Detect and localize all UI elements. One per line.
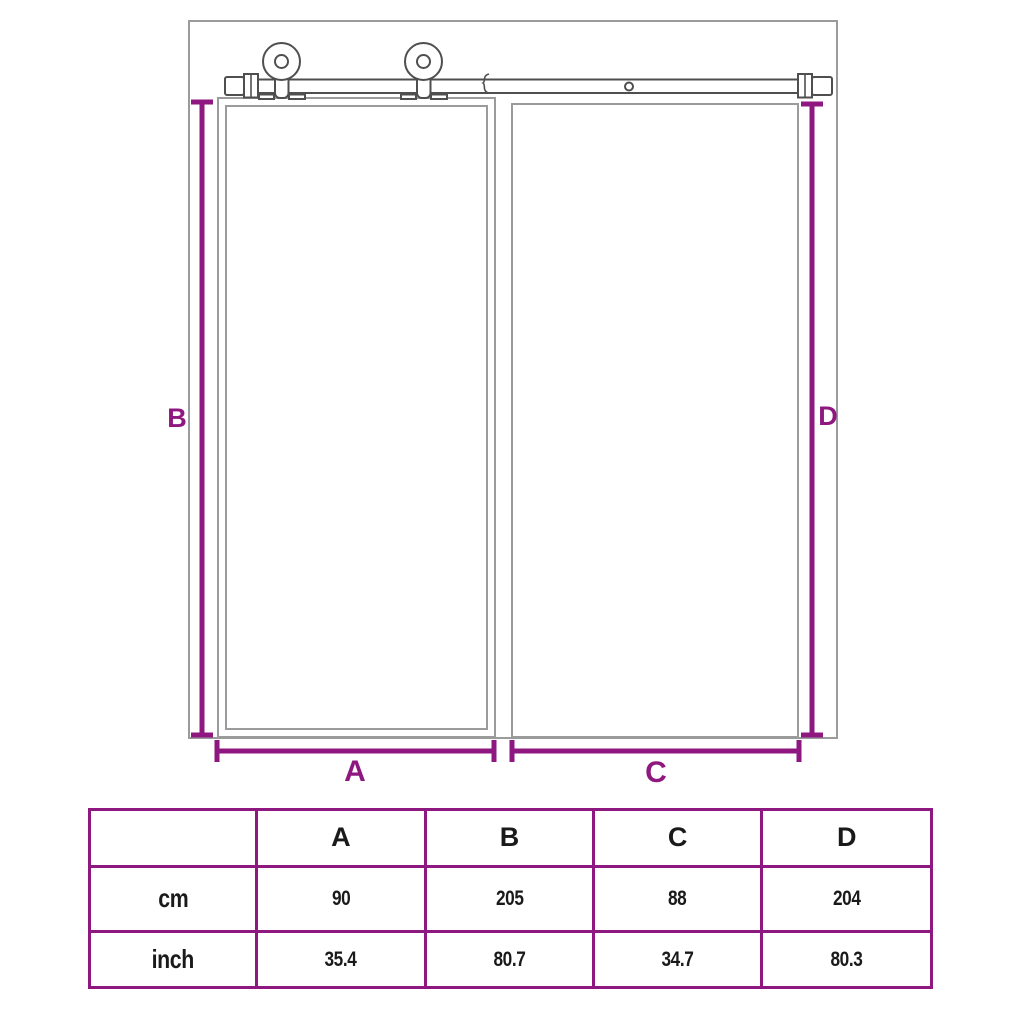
dimension-d: D [801, 104, 838, 735]
roller-right-plate-a [401, 95, 416, 100]
dimension-a: A [217, 740, 494, 788]
value-inch-c-text: 34.7 [662, 948, 694, 972]
doorway-opening [512, 104, 798, 737]
value-inch-a: 35.4 [258, 933, 425, 986]
table-header-b-text: B [500, 822, 520, 853]
sliding-rail [225, 74, 832, 98]
value-cm-c: 88 [595, 868, 761, 931]
table-header-d: D [763, 811, 930, 865]
door-outer-edge [218, 98, 495, 737]
roller-left-axle [275, 55, 288, 68]
table-header-b: B [427, 811, 592, 865]
value-inch-b: 80.7 [427, 933, 592, 986]
value-cm-a: 90 [258, 868, 425, 931]
rail-end-cap-right [812, 77, 832, 95]
row-label-inch-text: inch [152, 944, 194, 975]
roller-left-plate-b [289, 95, 305, 100]
door-inner-edge [226, 106, 487, 729]
rail-tube [258, 80, 798, 94]
value-cm-b-text: 205 [496, 887, 524, 911]
table-corner-cell [91, 811, 255, 865]
table-header-c: C [595, 811, 761, 865]
door-panel [218, 98, 495, 737]
value-cm-d-text: 204 [833, 887, 861, 911]
value-cm-c-text: 88 [668, 887, 686, 911]
roller-right-axle [417, 55, 430, 68]
roller-left-plate-a [259, 95, 274, 100]
row-label-cm-text: cm [158, 883, 188, 914]
dimension-a-label: A [344, 755, 366, 788]
sliding-door-diagram: B D A C [0, 0, 1024, 800]
dimension-c-label: C [645, 756, 667, 789]
rail-mount-hole [625, 83, 633, 91]
dimension-c: C [512, 740, 799, 789]
rail-end-cap-left [225, 77, 244, 95]
table-header-a: A [258, 811, 425, 865]
table-header-d-text: D [837, 822, 857, 853]
value-cm-a-text: 90 [332, 887, 350, 911]
value-inch-b-text: 80.7 [494, 948, 526, 972]
value-inch-a-text: 35.4 [325, 948, 357, 972]
dimensions-table: A B C D cm 90 205 88 204 inch [88, 808, 933, 989]
value-inch-d-text: 80.3 [831, 948, 863, 972]
value-inch-d: 80.3 [763, 933, 930, 986]
value-inch-c: 34.7 [595, 933, 761, 986]
table-header-c-text: C [668, 822, 688, 853]
value-cm-b: 205 [427, 868, 592, 931]
product-dimensions-page: B D A C A [0, 0, 1024, 1024]
value-cm-d: 204 [763, 868, 930, 931]
row-label-cm: cm [91, 868, 255, 931]
roller-right-plate-b [431, 95, 447, 100]
row-label-inch: inch [91, 933, 255, 986]
dimension-b-label: B [167, 403, 187, 433]
table-header-a-text: A [331, 822, 351, 853]
dimension-d-label: D [818, 401, 838, 431]
dimension-b: B [167, 102, 213, 735]
